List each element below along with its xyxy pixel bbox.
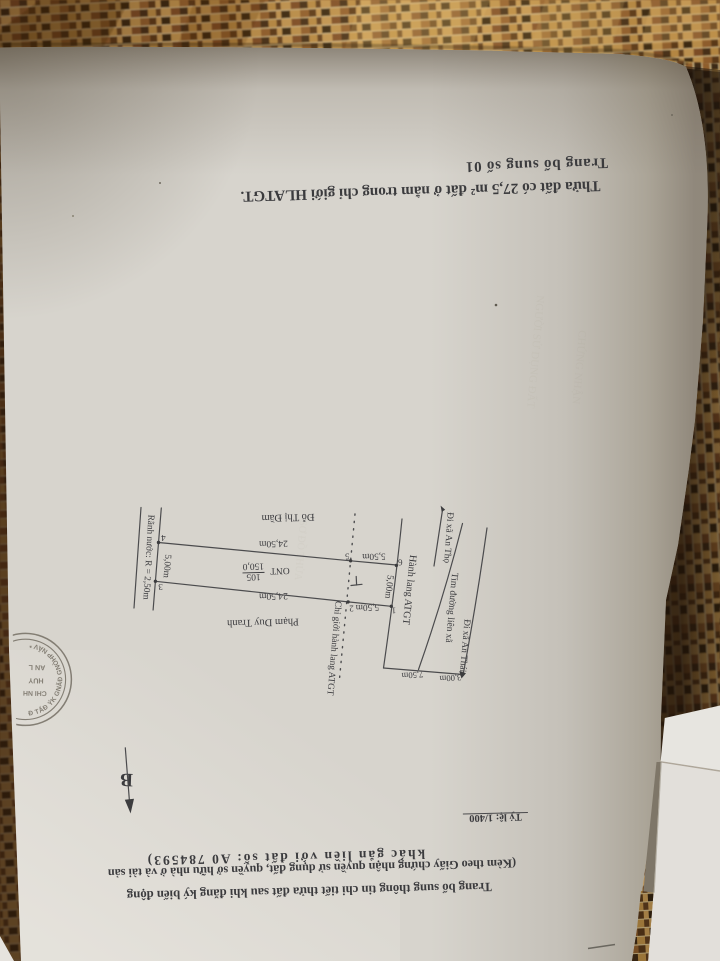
svg-text:B: B: [120, 769, 134, 790]
svg-text:150,0: 150,0: [242, 560, 264, 571]
svg-text:24,50m: 24,50m: [258, 538, 288, 549]
svg-text:CHI NH: CHI NH: [23, 689, 47, 696]
svg-text:3: 3: [158, 582, 163, 592]
svg-text:4: 4: [161, 533, 166, 543]
svg-text:5,00m: 5,00m: [161, 554, 173, 579]
svg-text:Phạm Duy Tranh: Phạm Duy Tranh: [226, 616, 299, 629]
svg-text:5,50m: 5,50m: [361, 551, 386, 562]
svg-text:AN L: AN L: [28, 663, 46, 672]
svg-text:2: 2: [349, 604, 354, 614]
svg-text:ONT: ONT: [270, 565, 290, 575]
svg-text:Đỗ Thị Đầm: Đỗ Thị Đầm: [261, 511, 314, 523]
svg-text:HUY: HUY: [28, 676, 44, 685]
